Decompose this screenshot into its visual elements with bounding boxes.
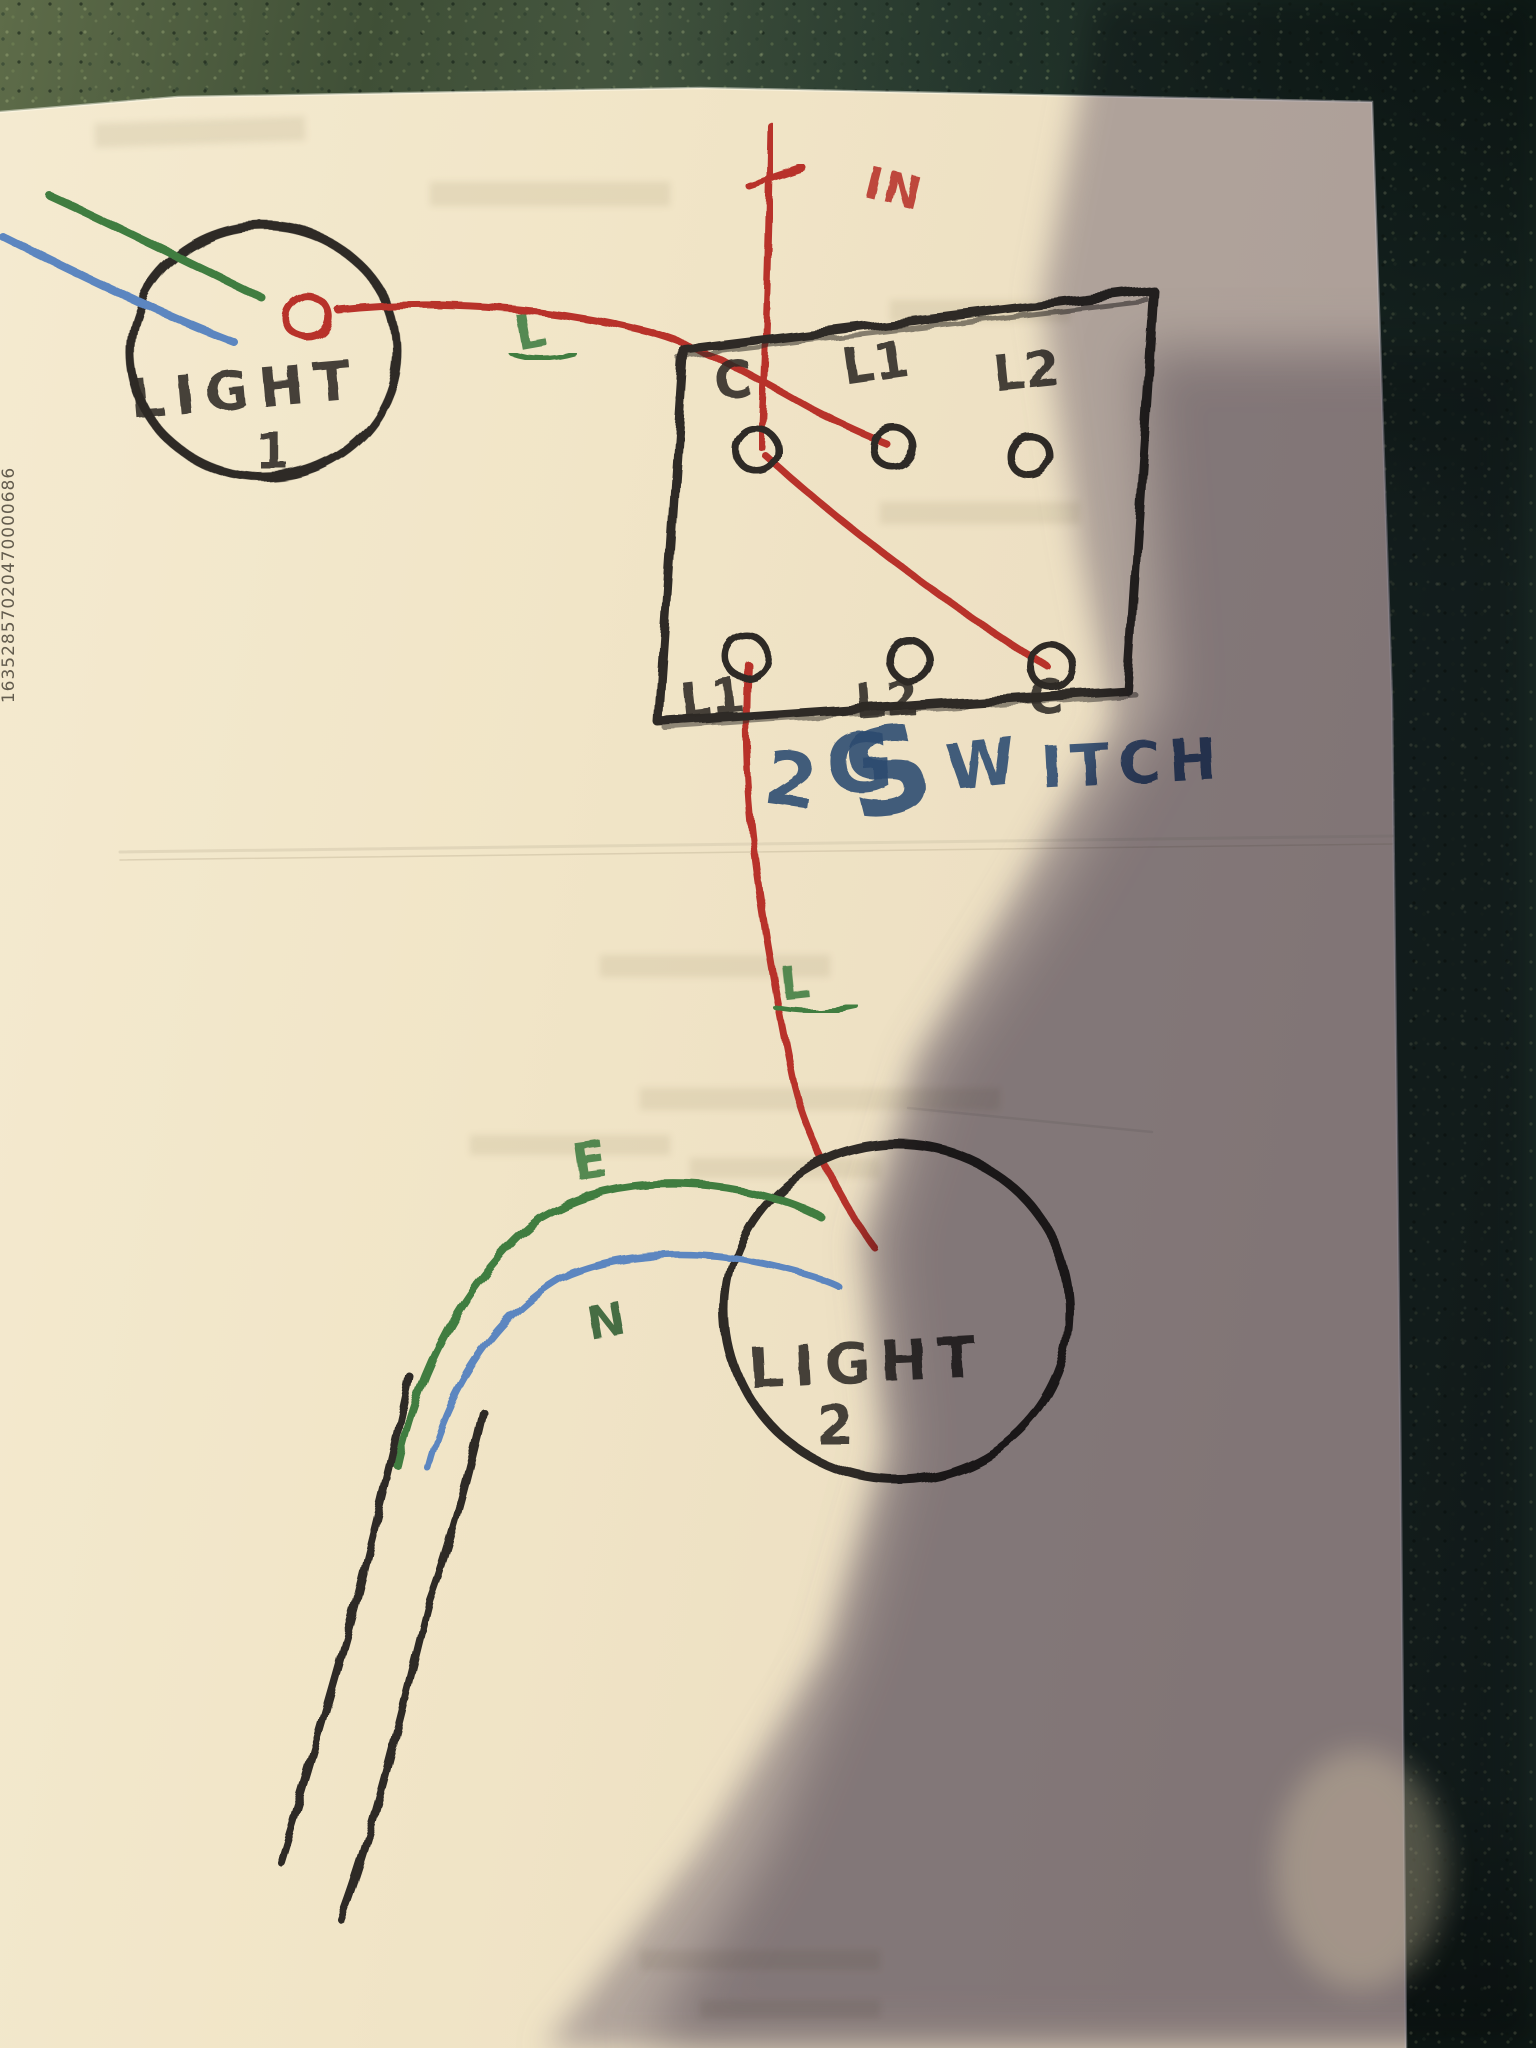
switch-name-w: W (942, 725, 1020, 806)
wiring-diagram-sketch: 16352857020470000686 (0, 0, 1536, 2048)
label-bottom-c: C (1026, 669, 1065, 727)
label-bottom-l1: L1 (678, 667, 747, 729)
live-label-lower: L (778, 954, 813, 1011)
light1-number: 1 (255, 422, 290, 480)
label-top-l1: L1 (839, 330, 913, 397)
light-leak-patch (1275, 1750, 1445, 1990)
paper-edge-code: 16352857020470000686 (0, 467, 19, 703)
photo-stage: 16352857020470000686 (0, 0, 1536, 2048)
label-top-c: C (711, 349, 755, 413)
light2-number: 2 (816, 1394, 854, 1457)
